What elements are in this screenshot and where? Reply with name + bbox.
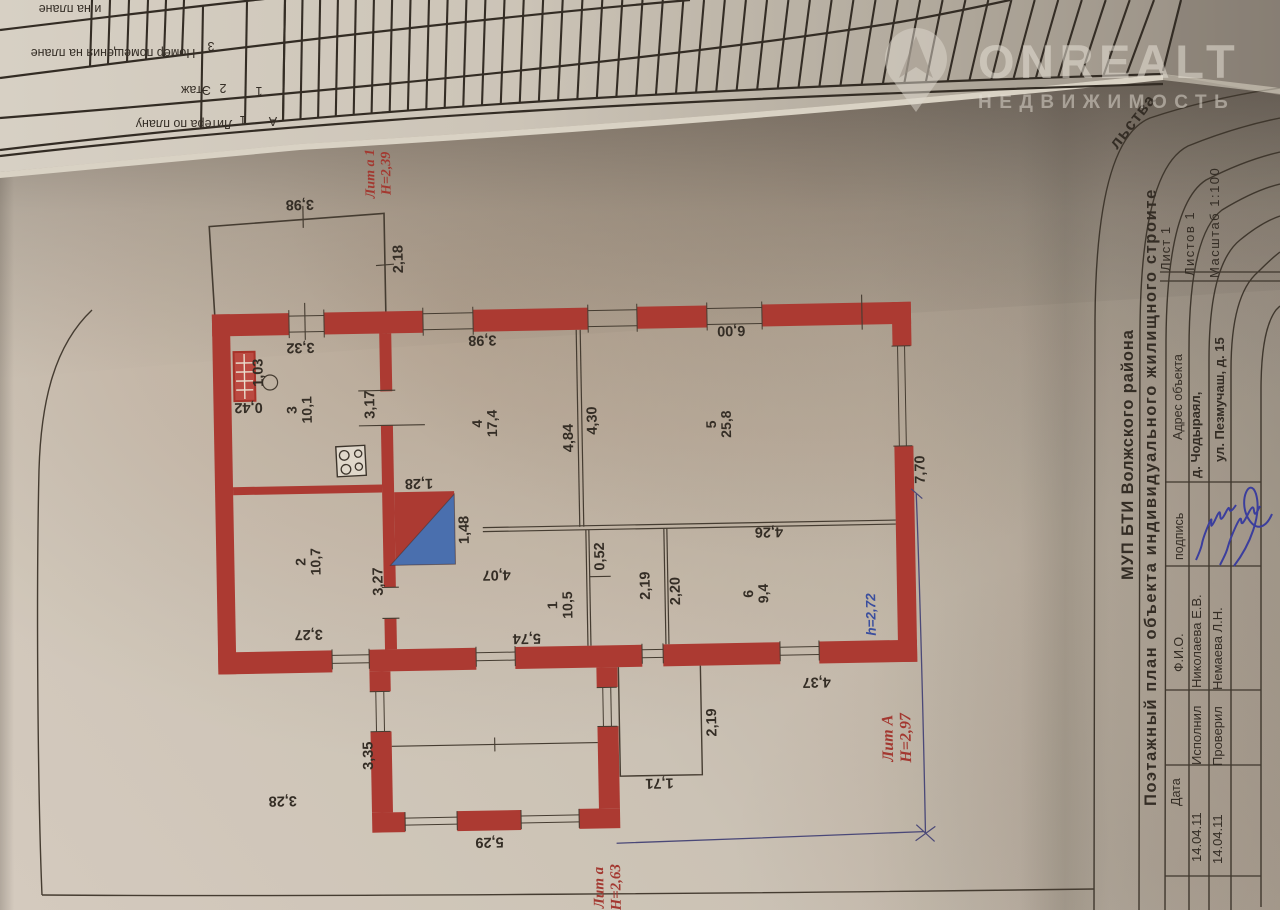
- svg-text:Литера по плану: Литера по плану: [135, 117, 232, 131]
- svg-text:МУП БТИ Волжского района: МУП БТИ Волжского района: [1119, 329, 1137, 580]
- svg-text:ONREALT: ONREALT: [978, 35, 1240, 88]
- svg-text:Немаева Л.Н.: Немаева Л.Н.: [1210, 607, 1225, 690]
- svg-text:НЕДВИЖИМОСТЬ: НЕДВИЖИМОСТЬ: [978, 92, 1235, 113]
- svg-text:3: 3: [284, 406, 300, 414]
- svg-text:ул. Пезмучаш, д. 15: ул. Пезмучаш, д. 15: [1212, 337, 1227, 462]
- svg-text:Николаева Е.В.: Николаева Е.В.: [1189, 594, 1204, 688]
- svg-text:5: 5: [703, 420, 719, 428]
- svg-text:Н=2,39: Н=2,39: [379, 152, 395, 197]
- svg-text:10,5: 10,5: [559, 591, 576, 619]
- svg-text:2,19: 2,19: [704, 708, 721, 737]
- svg-text:4,26: 4,26: [755, 523, 784, 540]
- svg-text:3,32: 3,32: [286, 339, 315, 356]
- svg-text:2,20: 2,20: [668, 577, 685, 606]
- svg-text:2,19: 2,19: [637, 571, 654, 600]
- svg-text:2: 2: [292, 558, 308, 566]
- svg-text:6: 6: [740, 590, 756, 598]
- svg-text:2,18: 2,18: [390, 245, 407, 274]
- svg-text:3,28: 3,28: [268, 792, 297, 809]
- svg-text:6,00: 6,00: [717, 322, 746, 339]
- svg-text:Лист 1: Лист 1: [1158, 226, 1173, 271]
- svg-text:5,74: 5,74: [513, 630, 542, 647]
- svg-text:7,70: 7,70: [912, 455, 929, 484]
- svg-text:4,30: 4,30: [584, 406, 601, 435]
- svg-text:Лит а: Лит а: [591, 866, 608, 909]
- svg-text:и на плане: и на плане: [39, 2, 102, 16]
- svg-text:д. Чодыраял,: д. Чодыраял,: [1188, 392, 1203, 478]
- svg-text:Масштаб 1:100: Масштаб 1:100: [1207, 167, 1222, 278]
- svg-text:5,29: 5,29: [475, 833, 504, 850]
- svg-text:9,4: 9,4: [755, 583, 771, 603]
- svg-text:Н=2,63: Н=2,63: [608, 863, 625, 910]
- svg-text:0,42: 0,42: [234, 399, 263, 416]
- svg-text:Ф.И.О.: Ф.И.О.: [1172, 633, 1186, 672]
- svg-text:25,8: 25,8: [718, 410, 735, 438]
- svg-text:1: 1: [544, 601, 560, 609]
- svg-text:1,28: 1,28: [405, 475, 434, 492]
- svg-text:4,84: 4,84: [561, 424, 578, 453]
- svg-text:4,37: 4,37: [802, 673, 831, 690]
- svg-text:Этаж: Этаж: [180, 83, 211, 97]
- svg-text:3,35: 3,35: [361, 741, 378, 770]
- svg-text:4,07: 4,07: [482, 566, 511, 583]
- svg-text:1: 1: [255, 84, 262, 98]
- svg-text:3,27: 3,27: [370, 567, 387, 596]
- svg-text:3,98: 3,98: [468, 332, 497, 349]
- svg-text:10,7: 10,7: [307, 548, 324, 576]
- svg-text:Поэтажный план объекта индивид: Поэтажный план объекта индивидуального ж…: [1142, 188, 1160, 806]
- svg-text:Дата: Дата: [1169, 778, 1183, 806]
- svg-text:3,98: 3,98: [286, 196, 315, 213]
- svg-text:10,1: 10,1: [298, 396, 315, 424]
- svg-text:подпись: подпись: [1172, 513, 1186, 560]
- svg-text:h=2,72: h=2,72: [863, 593, 879, 636]
- svg-text:1,03: 1,03: [250, 358, 267, 387]
- svg-text:А: А: [268, 114, 277, 128]
- svg-text:2: 2: [219, 81, 226, 95]
- svg-text:Адрес объекта: Адрес объекта: [1171, 354, 1185, 440]
- svg-text:3,17: 3,17: [362, 390, 379, 419]
- svg-text:Номер помещения на плане: Номер помещения на плане: [31, 46, 196, 60]
- svg-text:Лит а 1: Лит а 1: [363, 149, 379, 200]
- svg-text:Проверил: Проверил: [1210, 706, 1225, 766]
- svg-text:4: 4: [469, 419, 485, 427]
- svg-text:Н=2,97: Н=2,97: [897, 712, 915, 764]
- svg-text:1: 1: [239, 113, 246, 127]
- svg-text:14.04.11: 14.04.11: [1210, 814, 1225, 864]
- svg-text:0,52: 0,52: [592, 542, 609, 571]
- svg-text:Лит А: Лит А: [879, 714, 897, 763]
- svg-text:1,48: 1,48: [456, 516, 473, 545]
- svg-text:17,4: 17,4: [484, 409, 501, 437]
- svg-text:1,71: 1,71: [645, 774, 674, 791]
- svg-text:Листов 1: Листов 1: [1182, 211, 1197, 276]
- svg-text:14.04.11: 14.04.11: [1189, 812, 1204, 862]
- svg-text:Исполнил: Исполнил: [1189, 706, 1204, 765]
- svg-text:3: 3: [207, 39, 214, 53]
- svg-text:3,27: 3,27: [294, 626, 323, 643]
